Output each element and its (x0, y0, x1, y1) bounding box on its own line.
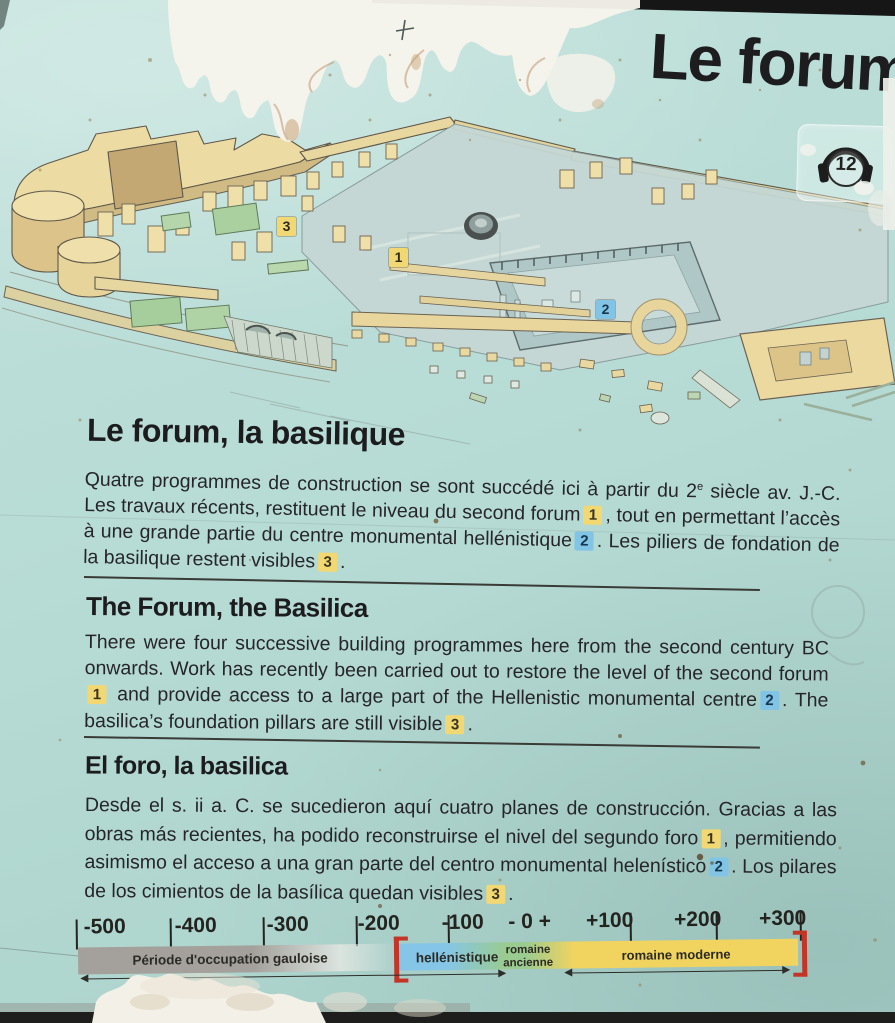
timeline: -500-400-300-200-100- 0 ++100+200+300 Pé… (0, 900, 895, 1001)
timeline-arrow-left (84, 973, 502, 979)
buildings-group (98, 144, 717, 260)
timeline-bracket-right (793, 931, 808, 977)
ref-marker-2: 2 (575, 532, 594, 551)
tick-label: +100 (565, 908, 655, 933)
tick-label: +200 (653, 907, 743, 932)
timeline-bracket-left (394, 936, 409, 982)
map-marker-3: 3 (277, 217, 296, 236)
period-label-romaine-ancienne: romaine ancienne (489, 944, 567, 970)
tick-label: -200 (334, 911, 424, 936)
ref-marker-2: 2 (760, 691, 779, 710)
tick-mark (630, 913, 633, 943)
tick-label: -300 (243, 912, 333, 937)
tick-label: -500 (60, 915, 150, 940)
ramparts-group (12, 117, 888, 300)
paragraph-english: There were four successive building prog… (84, 629, 829, 740)
map-marker-2: 2 (596, 300, 615, 319)
colonnade-spine (352, 262, 687, 355)
tick-mark (448, 915, 451, 945)
ref-marker-1: 1 (583, 506, 602, 525)
ref-marker-3: 3 (446, 715, 465, 734)
ref-marker-2: 2 (709, 858, 728, 877)
tick-mark (716, 912, 719, 942)
column-bases (352, 330, 700, 424)
tick-mark (356, 916, 359, 946)
pools-group (130, 203, 308, 331)
paragraph-spanish: Desde el s. ii a. C. se sucedieron aquí … (84, 791, 837, 911)
well-drum (464, 212, 498, 240)
timeline-arrow-right (568, 970, 786, 974)
platform-traces (360, 215, 540, 280)
tick-mark (76, 920, 79, 950)
heading-french: Le forum, la basilique (87, 412, 405, 453)
ref-marker-1: 1 (87, 685, 106, 704)
map-marker-1: 1 (389, 248, 408, 267)
information-panel: Le forum 12 312 Le forum, la basilique Q… (0, 0, 895, 1023)
audio-guide-sticker: 12 (796, 124, 893, 203)
ref-marker-1: 1 (701, 829, 720, 848)
basilica-court (490, 242, 720, 350)
southeast-platform (692, 318, 895, 420)
tick-label: +300 (738, 906, 828, 931)
paragraph-french: Quatre programmes de construction se son… (83, 463, 841, 585)
audio-guide-number: 12 (831, 154, 862, 177)
period-label-romaine-moderne: romaine moderne (567, 946, 785, 964)
heading-english: The Forum, the Basilica (86, 591, 368, 624)
photo-edge-bottom (0, 1012, 895, 1023)
panel-title: Le forum (648, 19, 895, 107)
tick-mark (170, 918, 173, 948)
tick-mark (263, 917, 266, 947)
tick-label: - 0 + (485, 909, 575, 934)
ref-marker-3: 3 (486, 885, 505, 904)
tick-label: -400 (151, 914, 241, 939)
heading-spanish: El foro, la basilica (85, 751, 288, 781)
vaulted-slope (224, 316, 332, 368)
ref-marker-3: 3 (318, 552, 337, 571)
